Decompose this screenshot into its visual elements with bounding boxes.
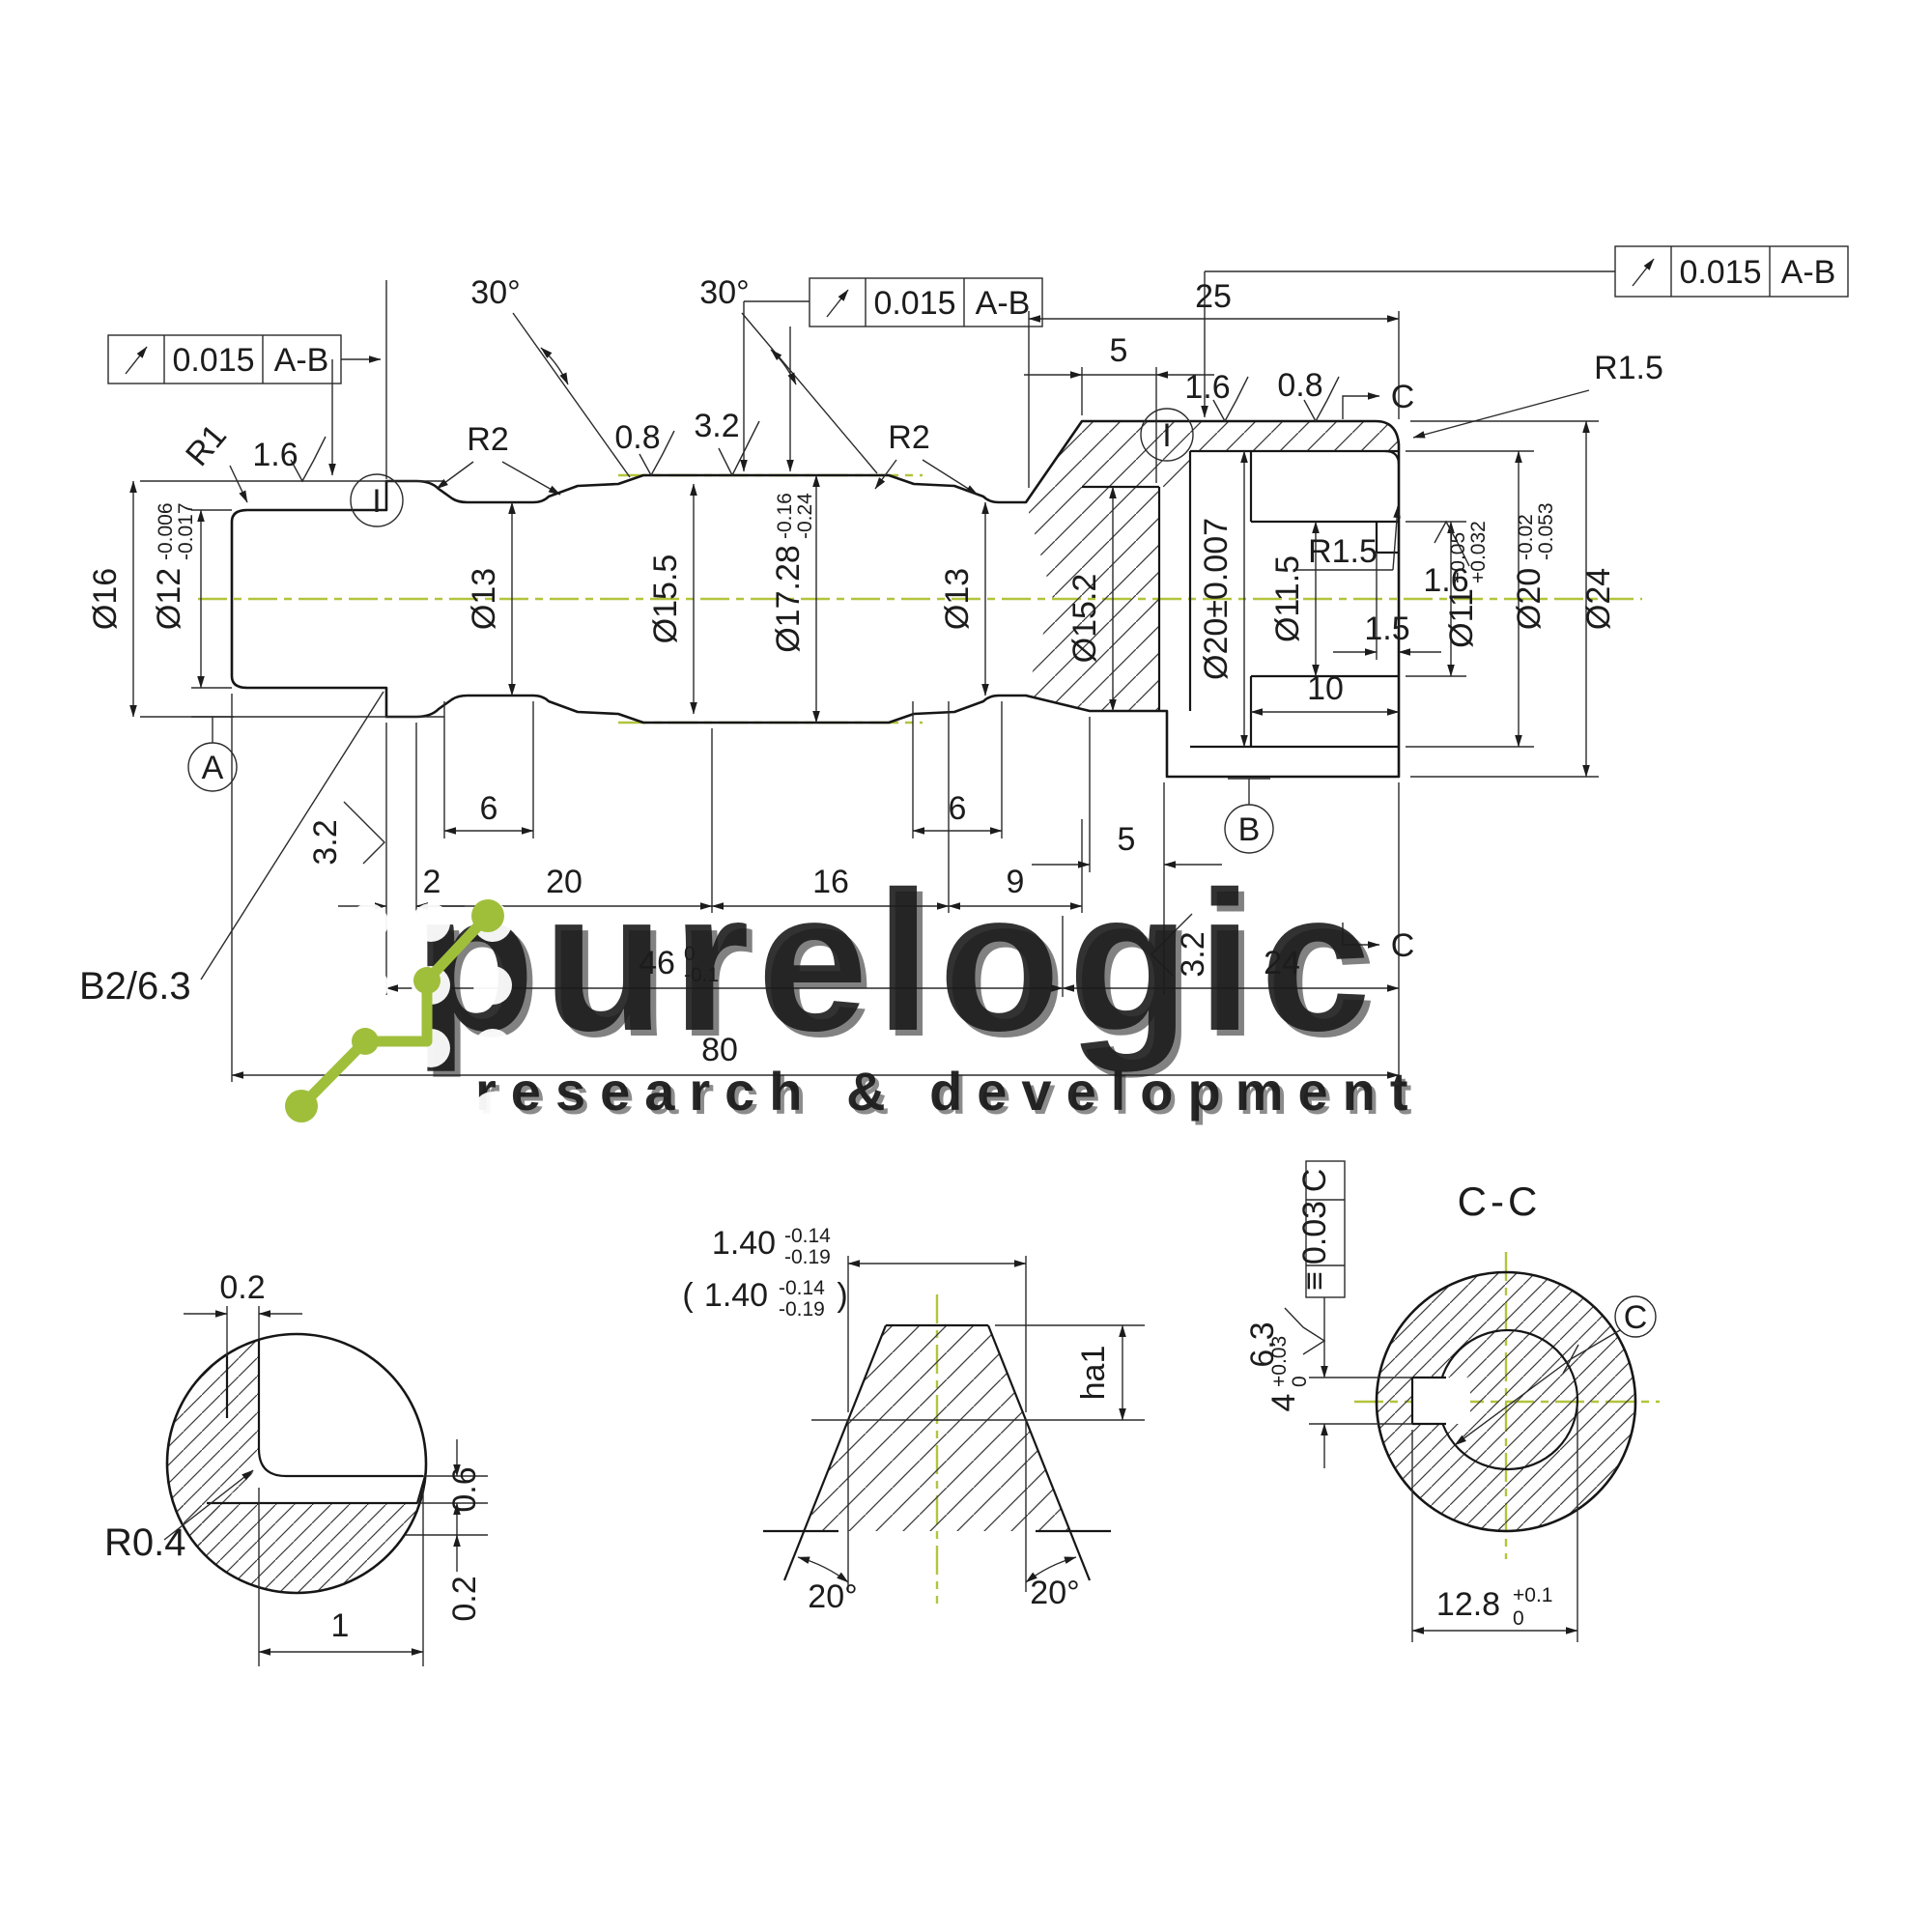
svg-text:1.40: 1.40 [712, 1225, 776, 1262]
tolerance-datum: A-B [274, 342, 329, 379]
dim-6-right: 6 [949, 790, 967, 827]
svg-text:-0.19: -0.19 [779, 1298, 825, 1321]
svg-text:0.6: 0.6 [446, 1466, 483, 1512]
dim-80: 80 [701, 1032, 738, 1068]
svg-text:I: I [372, 483, 381, 520]
dim-25: 25 [1195, 278, 1232, 315]
angle-20-right: 20° [1030, 1575, 1079, 1611]
drawing-page: 0.015 A-B 0.015 A-B 0.015 A-B [0, 0, 1932, 1932]
svg-text:46: 46 [639, 945, 675, 981]
svg-text:4: 4 [1265, 1394, 1302, 1412]
section-title: C-C [1458, 1179, 1542, 1224]
svg-text:0.2: 0.2 [446, 1576, 483, 1621]
svg-text:): ) [837, 1277, 847, 1314]
svg-text:-0.02: -0.02 [1515, 514, 1537, 560]
dia20-right-label: Ø20 -0.02 -0.053 [1511, 502, 1557, 630]
circled-C-callout: C [1615, 1296, 1656, 1337]
svg-text:0: 0 [1289, 1376, 1311, 1387]
finish-08-head: 0.8 [1277, 367, 1322, 404]
datum-B: B [1225, 779, 1273, 853]
finish-08-band: 0.8 [614, 419, 660, 456]
dim-128: 12.8 +0.1 0 [1436, 1584, 1553, 1630]
svg-text:Ø11.5: Ø11.5 [1269, 555, 1306, 642]
svg-text:Ø15.5: Ø15.5 [647, 554, 684, 644]
centerlines [198, 475, 1642, 723]
runout-icon [126, 347, 147, 374]
finish-16-left: 1.6 [252, 437, 298, 473]
cc-finish-63 [1285, 1308, 1324, 1354]
finish-16-inner: 1.6 [1423, 562, 1468, 599]
dim-4-keyway: 4 +0.03 0 [1265, 1336, 1311, 1412]
svg-text:Ø13: Ø13 [466, 568, 502, 630]
radius-R2-left: R2 [467, 421, 508, 458]
watermark: purelogic purelogic research & developme… [285, 850, 1426, 1130]
svg-text:-0.053: -0.053 [1535, 502, 1557, 560]
svg-text:C: C [1391, 379, 1415, 415]
dia115-label: Ø11.5 [1269, 555, 1306, 642]
dia20-mid-label: Ø20±0.007 [1198, 518, 1235, 680]
dia155-label: Ø15.5 [647, 554, 684, 644]
tolerance-value: 0.015 [873, 285, 955, 322]
feature-circle-I-left: I [351, 474, 403, 526]
svg-text:Ø12: Ø12 [151, 568, 187, 630]
finish-16-head: 1.6 [1184, 369, 1230, 406]
dim-9: 9 [1007, 864, 1025, 900]
datum-A: A [188, 717, 237, 791]
radius-R15-outer: R1.5 [1594, 350, 1663, 386]
svg-text:0.03: 0.03 [1296, 1201, 1333, 1264]
dim-10: 10 [1307, 670, 1344, 707]
section-cut-top: C [1343, 379, 1414, 419]
svg-text:+0.03: +0.03 [1268, 1336, 1291, 1387]
svg-text:Ø15.2: Ø15.2 [1066, 574, 1103, 664]
tolerance-frame-left: 0.015 A-B [108, 335, 381, 475]
svg-text:1.40: 1.40 [704, 1277, 768, 1314]
radius-R1: R1 [179, 417, 234, 473]
dim-140: 1.40 -0.14 -0.19 [712, 1225, 831, 1268]
tolerance-value: 0.015 [172, 342, 254, 379]
dim-6-left: 6 [480, 790, 498, 827]
svg-text:-0.14: -0.14 [779, 1277, 825, 1299]
radius-R2-right: R2 [888, 419, 929, 456]
svg-text:C: C [1624, 1299, 1648, 1336]
svg-text:-0.006: -0.006 [155, 502, 177, 560]
tolerance-datum: A-B [1781, 254, 1836, 291]
datum-label: A [202, 750, 224, 786]
svg-text:R1: R1 [179, 417, 234, 473]
technical-drawing-canvas: 0.015 A-B 0.015 A-B 0.015 A-B [0, 0, 1932, 1932]
svg-text:12.8: 12.8 [1436, 1586, 1500, 1623]
svg-text:+0.1: +0.1 [1513, 1584, 1552, 1606]
svg-text:0: 0 [684, 943, 696, 965]
svg-text:+0.032: +0.032 [1467, 521, 1490, 583]
cc-frame: C 0.03 ≡ [1296, 1161, 1345, 1378]
detail-view-groove: 0.2 0.6 0.2 1 R0.4 [104, 1269, 488, 1666]
dia13-left-label: Ø13 [466, 568, 502, 630]
svg-text:-0.19: -0.19 [784, 1246, 831, 1268]
dia16-label: Ø16 [87, 568, 124, 630]
svg-text:Ø24: Ø24 [1580, 568, 1617, 630]
dia24-label: Ø24 [1580, 568, 1617, 630]
svg-text:-0.1: -0.1 [684, 964, 719, 986]
keyway-slot [1412, 1378, 1470, 1424]
dim-2: 2 [423, 864, 441, 900]
angle-20-left: 20° [808, 1578, 857, 1615]
dim-06-right: 0.6 [446, 1466, 483, 1512]
angle-30-right: 30° [699, 274, 749, 311]
runout-icon [1633, 259, 1654, 286]
finish-32-band: 3.2 [694, 408, 739, 444]
dim-24: 24 [1264, 945, 1300, 981]
dim-1-bottom: 1 [331, 1607, 350, 1644]
tooth-profile-view: 1.40 -0.14 -0.19 ( 1.40 -0.14 -0.19 ) ha… [682, 1225, 1145, 1615]
radius-R15-inner: R1.5 [1308, 533, 1378, 570]
svg-text:Ø17.28: Ø17.28 [770, 545, 807, 653]
svg-text:C: C [1391, 927, 1415, 964]
dia13-right-label: Ø13 [939, 568, 976, 630]
svg-text:-0.24: -0.24 [794, 493, 816, 539]
svg-text:I: I [1162, 417, 1171, 454]
svg-text:ha1: ha1 [1075, 1346, 1112, 1401]
runout-icon [827, 290, 848, 317]
watermark-sub: research & development [475, 1061, 1422, 1122]
svg-text:Ø20: Ø20 [1511, 568, 1548, 630]
dia12-label: Ø12 -0.006 -0.017 [151, 502, 197, 630]
dim-140-ref: ( 1.40 -0.14 -0.19 ) [682, 1277, 847, 1321]
svg-text:(: ( [682, 1277, 694, 1314]
finish-32-left: 3.2 [307, 819, 344, 865]
dim-ha1: ha1 [1075, 1346, 1112, 1401]
dim-5-top: 5 [1110, 332, 1128, 369]
tolerance-value: 0.015 [1679, 254, 1761, 291]
angle-30-left: 30° [470, 274, 520, 311]
datum-label: B [1238, 811, 1261, 848]
svg-text:C: C [1296, 1169, 1333, 1193]
tolerance-datum: A-B [976, 285, 1031, 322]
dim-16: 16 [812, 864, 849, 900]
svg-text:-0.16: -0.16 [774, 493, 796, 539]
dim-02-right: 0.2 [446, 1576, 483, 1621]
svg-text:Ø13: Ø13 [939, 568, 976, 630]
symmetry-icon: ≡ [1296, 1271, 1333, 1291]
dim-02-top: 0.2 [219, 1269, 265, 1306]
section-cc-view: C-C C 0.03 ≡ 6.3 [1244, 1161, 1660, 1642]
svg-text:0: 0 [1513, 1607, 1524, 1630]
svg-text:-0.017: -0.017 [175, 502, 197, 560]
dia1728-label: Ø17.28 -0.16 -0.24 [770, 493, 816, 653]
dim-20: 20 [546, 864, 582, 900]
note-B2-63: B2/6.3 [79, 965, 191, 1008]
dim-5-bottom: 5 [1118, 821, 1136, 858]
svg-text:Ø20±0.007: Ø20±0.007 [1198, 518, 1235, 680]
svg-text:Ø16: Ø16 [87, 568, 124, 630]
radius-R04: R0.4 [104, 1521, 186, 1564]
dim-15: 1.5 [1364, 611, 1409, 647]
dia152-label: Ø15.2 [1066, 574, 1103, 664]
svg-text:-0.14: -0.14 [784, 1225, 831, 1247]
detail-hatch [116, 1285, 473, 1642]
svg-text:3.2: 3.2 [307, 819, 344, 865]
